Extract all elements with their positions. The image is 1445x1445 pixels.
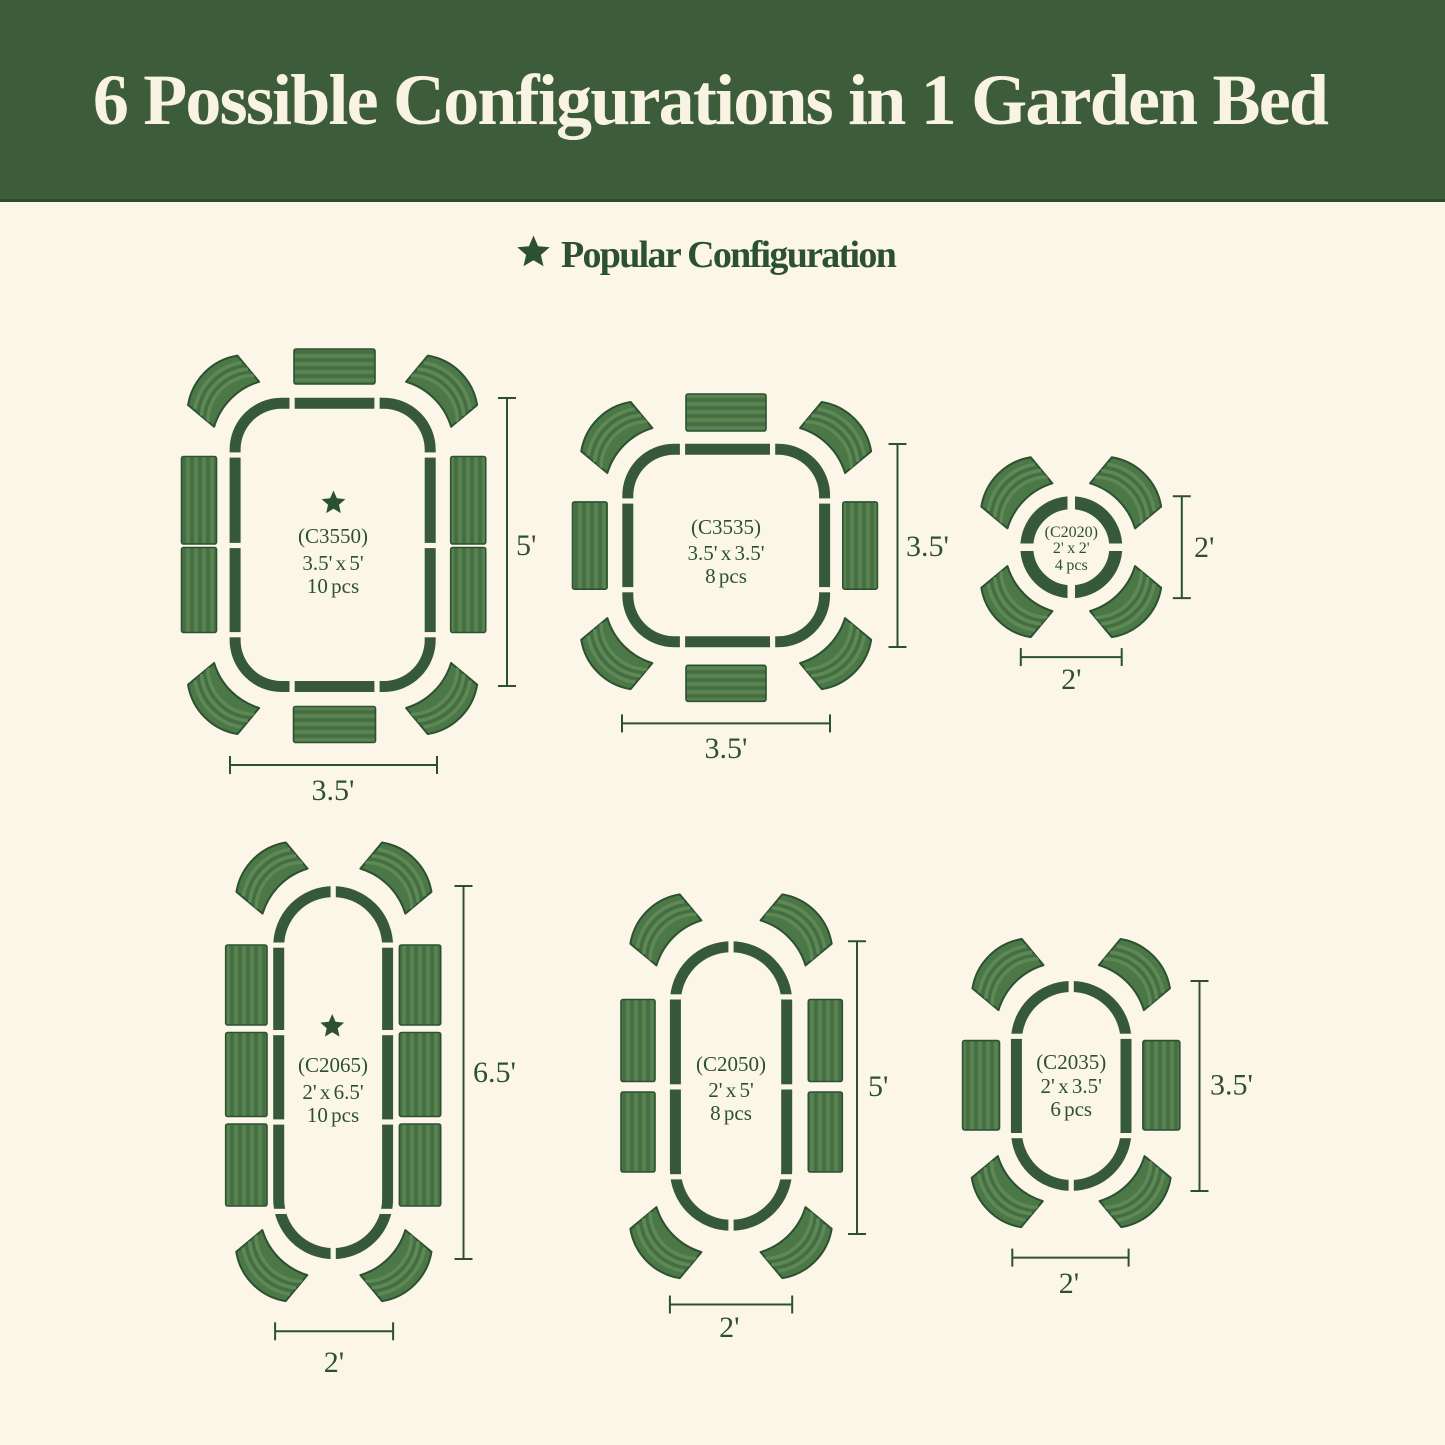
svg-text:2': 2'	[1059, 1267, 1079, 1300]
svg-text:6 Possible Configurations in 1: 6 Possible Configurations in 1 Garden Be…	[93, 60, 1329, 140]
svg-text:2': 2'	[1194, 531, 1214, 564]
svg-text:6.5': 6.5'	[473, 1056, 516, 1089]
svg-text:5': 5'	[516, 529, 536, 562]
svg-text:3.5': 3.5'	[705, 732, 748, 765]
svg-text:3.5': 3.5'	[906, 530, 949, 563]
svg-text:5': 5'	[868, 1070, 888, 1103]
svg-text:2': 2'	[1061, 663, 1081, 696]
svg-text:3.5': 3.5'	[1210, 1069, 1253, 1102]
svg-text:2': 2'	[324, 1346, 344, 1379]
svg-text:3.5': 3.5'	[312, 774, 355, 807]
svg-text:(C3550)3.5' x 5'10 pcs: (C3550)3.5' x 5'10 pcs	[298, 524, 368, 598]
svg-text:(C2065)2' x 6.5'10 pcs: (C2065)2' x 6.5'10 pcs	[298, 1053, 368, 1127]
svg-text:Popular Configuration: Popular Configuration	[561, 234, 897, 276]
svg-text:2': 2'	[719, 1311, 739, 1344]
